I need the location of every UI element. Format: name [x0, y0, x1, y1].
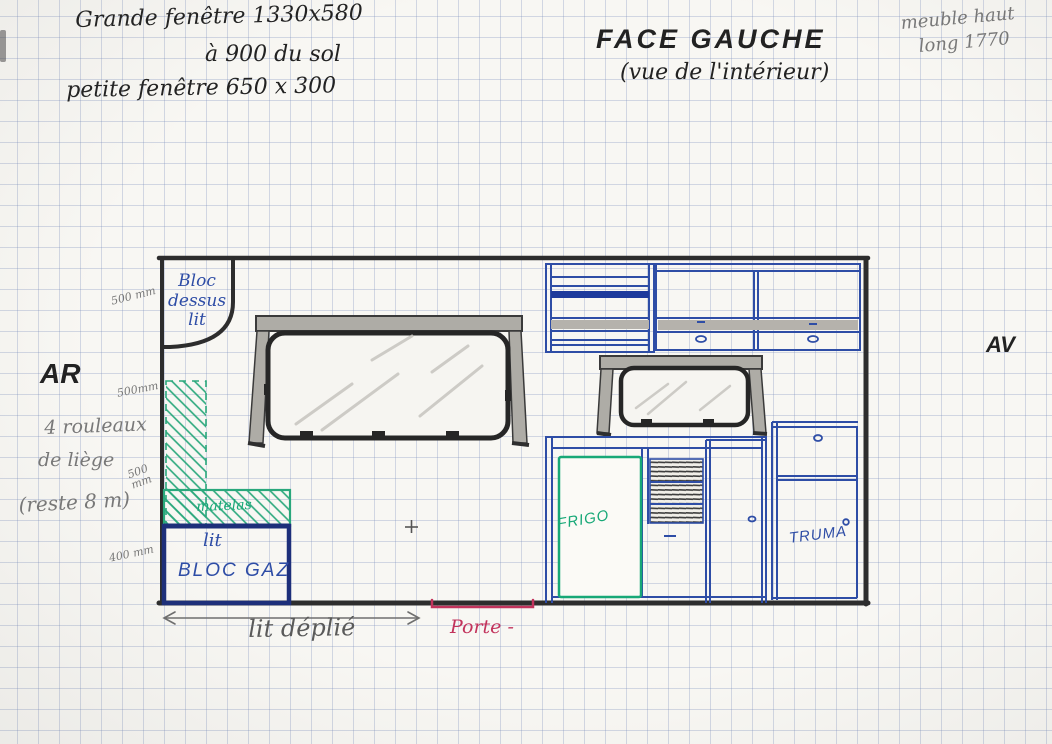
lit-label: lit [203, 531, 222, 552]
porte-label: Porte - [450, 617, 514, 639]
cork-note-line2: de liège [38, 450, 114, 472]
large-window [248, 316, 529, 446]
graph-paper-sketch: Grande fenêtre 1330x580 à 900 du sol pet… [0, 0, 1052, 744]
scan-artifact [0, 30, 6, 62]
bloc-gaz-label: BLOC GAZ [178, 560, 290, 582]
overhead-cabinet-left [546, 264, 654, 352]
bloc-dessus-lit-label: Bloc dessus lit [168, 272, 226, 331]
vent-louvers [648, 448, 703, 536]
window-note-line2: à 900 du sol [205, 42, 341, 67]
lit-deplie-label: lit déplié [248, 614, 356, 643]
small-window [597, 356, 767, 435]
truma-unit [772, 422, 858, 600]
cork-note-line1: 4 rouleaux [44, 414, 147, 439]
page-subtitle: (vue de l'intérieur) [620, 60, 829, 85]
cabinet-door-middle [706, 437, 766, 603]
rear-label: AR [40, 358, 80, 390]
page-title: FACE GAUCHE [596, 24, 826, 55]
front-label: AV [986, 332, 1015, 357]
sketch-svg [0, 0, 1052, 744]
matelas-label: matelas [196, 497, 252, 515]
window-note-line3: petite fenêtre 650 x 300 [66, 73, 336, 103]
overhead-cabinet-right [656, 264, 860, 350]
plus-mark [405, 520, 418, 533]
